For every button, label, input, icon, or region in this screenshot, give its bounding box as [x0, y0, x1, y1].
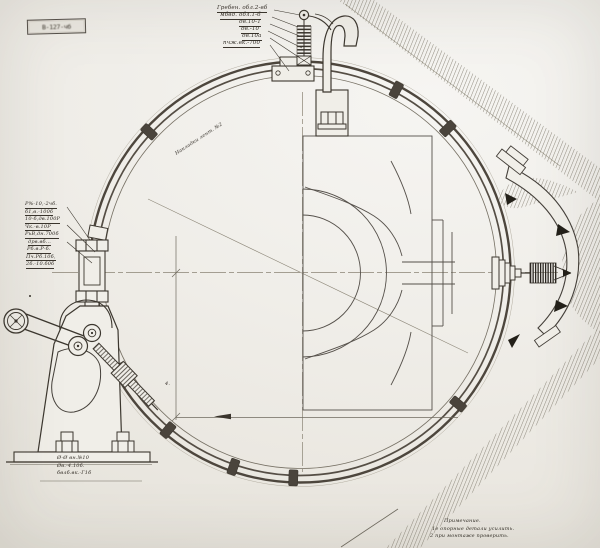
handwritten-label: пчж.вк.-700 — [223, 41, 260, 48]
scanned-engineering-drawing: В-127-чб Гребен. обл.2-вб мбвд. обл.1-б … — [0, 0, 600, 548]
note-line: 1е опорные детали усилить. — [432, 527, 514, 532]
handwritten-label: 2б.-10.б0б — [26, 262, 54, 269]
handwritten-label: РьВ,дн.700б — [25, 232, 59, 239]
stamp-text: В-127-чб — [42, 22, 71, 31]
handwritten-label: Р%-10,-2чб. — [25, 202, 57, 209]
release-coil-spring — [530, 263, 556, 283]
note-line: Примечание. — [444, 519, 481, 524]
drum-hub-section — [303, 136, 456, 410]
hull-frame-hatching — [338, 0, 600, 548]
handwritten-label: Рб.в.Р-б. — [27, 247, 51, 254]
band-lugs — [109, 81, 467, 486]
gooseneck-bracket — [323, 16, 358, 92]
column-bolt — [318, 112, 346, 129]
handwritten-label: бвлб.вк.-Г1б — [57, 471, 91, 476]
drawing-canvas — [0, 0, 600, 548]
note-line: 2 при монтаже проверить. — [430, 534, 509, 539]
washer-cone — [492, 257, 521, 289]
handwritten-label: 10-б,дв.100Р — [25, 217, 60, 224]
band-mount-plate — [272, 66, 314, 81]
handwritten-label: Ø-Ø вн.№10 — [57, 456, 89, 461]
drawing-number-stamp: В-127-чб — [27, 18, 86, 35]
dimension-mark: 4. — [165, 382, 170, 387]
handwritten-label: Øв.-4.10б. — [57, 464, 85, 469]
